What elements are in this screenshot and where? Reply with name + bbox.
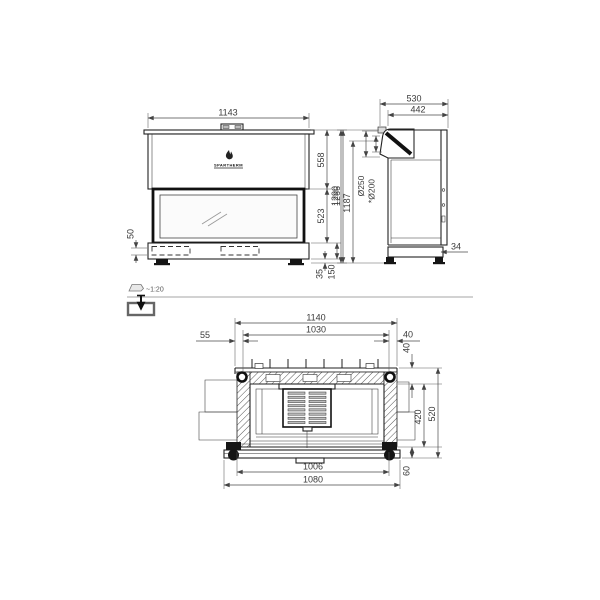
dim-base-height: 150 [327,243,338,280]
dim-plan-firebox-depth: 420 [413,384,424,447]
dim-plan-inner-width-label: 1030 [306,325,326,335]
dim-depth-body: 442 [388,105,448,127]
dim-plinth: 50 [126,229,148,263]
dim-plan-top-width-label: 1140 [306,313,325,323]
dim-plan-glass-width-label: 1006 [303,462,323,472]
dim-plan-firebox-depth-label: 420 [413,409,423,424]
dim-front-width-label: 1143 [218,108,237,118]
hood-panel [148,134,309,189]
brand-text: SPARTHERM [214,163,243,168]
dim-plan-left-offset-label: 55 [200,330,210,340]
dim-glass-height: 523 [316,189,327,243]
side-base [384,247,445,264]
dim-base-height-label: 150 [327,264,337,279]
dim-depth-total-label: 530 [406,94,421,104]
dim-plan-front-depth: 60 [402,447,413,476]
dim-plan-left-offset: 55 [196,330,258,341]
front-feet [154,259,304,265]
dim-glass-height-label: 523 [316,208,326,223]
door-front-plan [224,444,400,463]
stud-bolts [252,359,378,368]
drawing-page: SPARTHERM 1143 [0,0,600,600]
dim-flue-center-height-label: 1187 [342,193,352,212]
dim-flue-outer-label: Ø250 [356,175,366,196]
front-view: SPARTHERM 1143 [126,108,348,280]
dim-flue-inner-label: *Ø200 [367,179,377,203]
side-view: 530 442 1290 1187 Ø250 [330,94,468,265]
glass-door [153,189,304,243]
flue-outlet [378,127,414,158]
dim-flue-inner: *Ø200 [367,136,383,203]
dim-plan-top-width: 1140 [235,313,397,367]
section-symbol [128,296,154,316]
glass-pane [160,195,297,238]
dim-plan-back-depth-label: 40 [402,343,412,353]
dim-flue-center-height: 1187 [342,141,353,263]
dim-plan-right-offset-label: 40 [403,330,413,340]
dim-hood-height-label: 558 [316,152,326,167]
dim-plinth-label: 50 [126,229,136,239]
corner-bolt-right [386,373,395,382]
dim-base-inset-label: 34 [451,242,461,252]
scale-note: ~1:20 [146,287,164,294]
dim-depth-body-label: 442 [410,105,425,115]
annotations: ~1:20 [127,285,473,316]
convection-grille [279,384,335,431]
plan-view: 1140 1030 55 40 40 [196,313,442,490]
dim-side-total-height-label: 1290 [330,186,340,206]
base-band [148,243,309,259]
corner-bolt-left [238,373,247,382]
dim-plan-total-depth: 520 [427,368,438,458]
dim-plan-total-depth-label: 520 [427,406,437,421]
dim-plan-back-depth: 40 [402,343,413,398]
dim-feet-height-label: 35 [315,269,325,279]
scale-icon [129,285,144,292]
dim-plan-front-depth-label: 60 [402,466,412,476]
top-plate [144,130,314,134]
dim-plan-frame-width-label: 1080 [303,475,323,485]
damper-control [221,124,243,130]
fireplace-technical-drawing: SPARTHERM 1143 [0,0,600,600]
dim-hood-height: 558 [316,130,327,189]
dim-feet-height: 35 [315,251,326,279]
